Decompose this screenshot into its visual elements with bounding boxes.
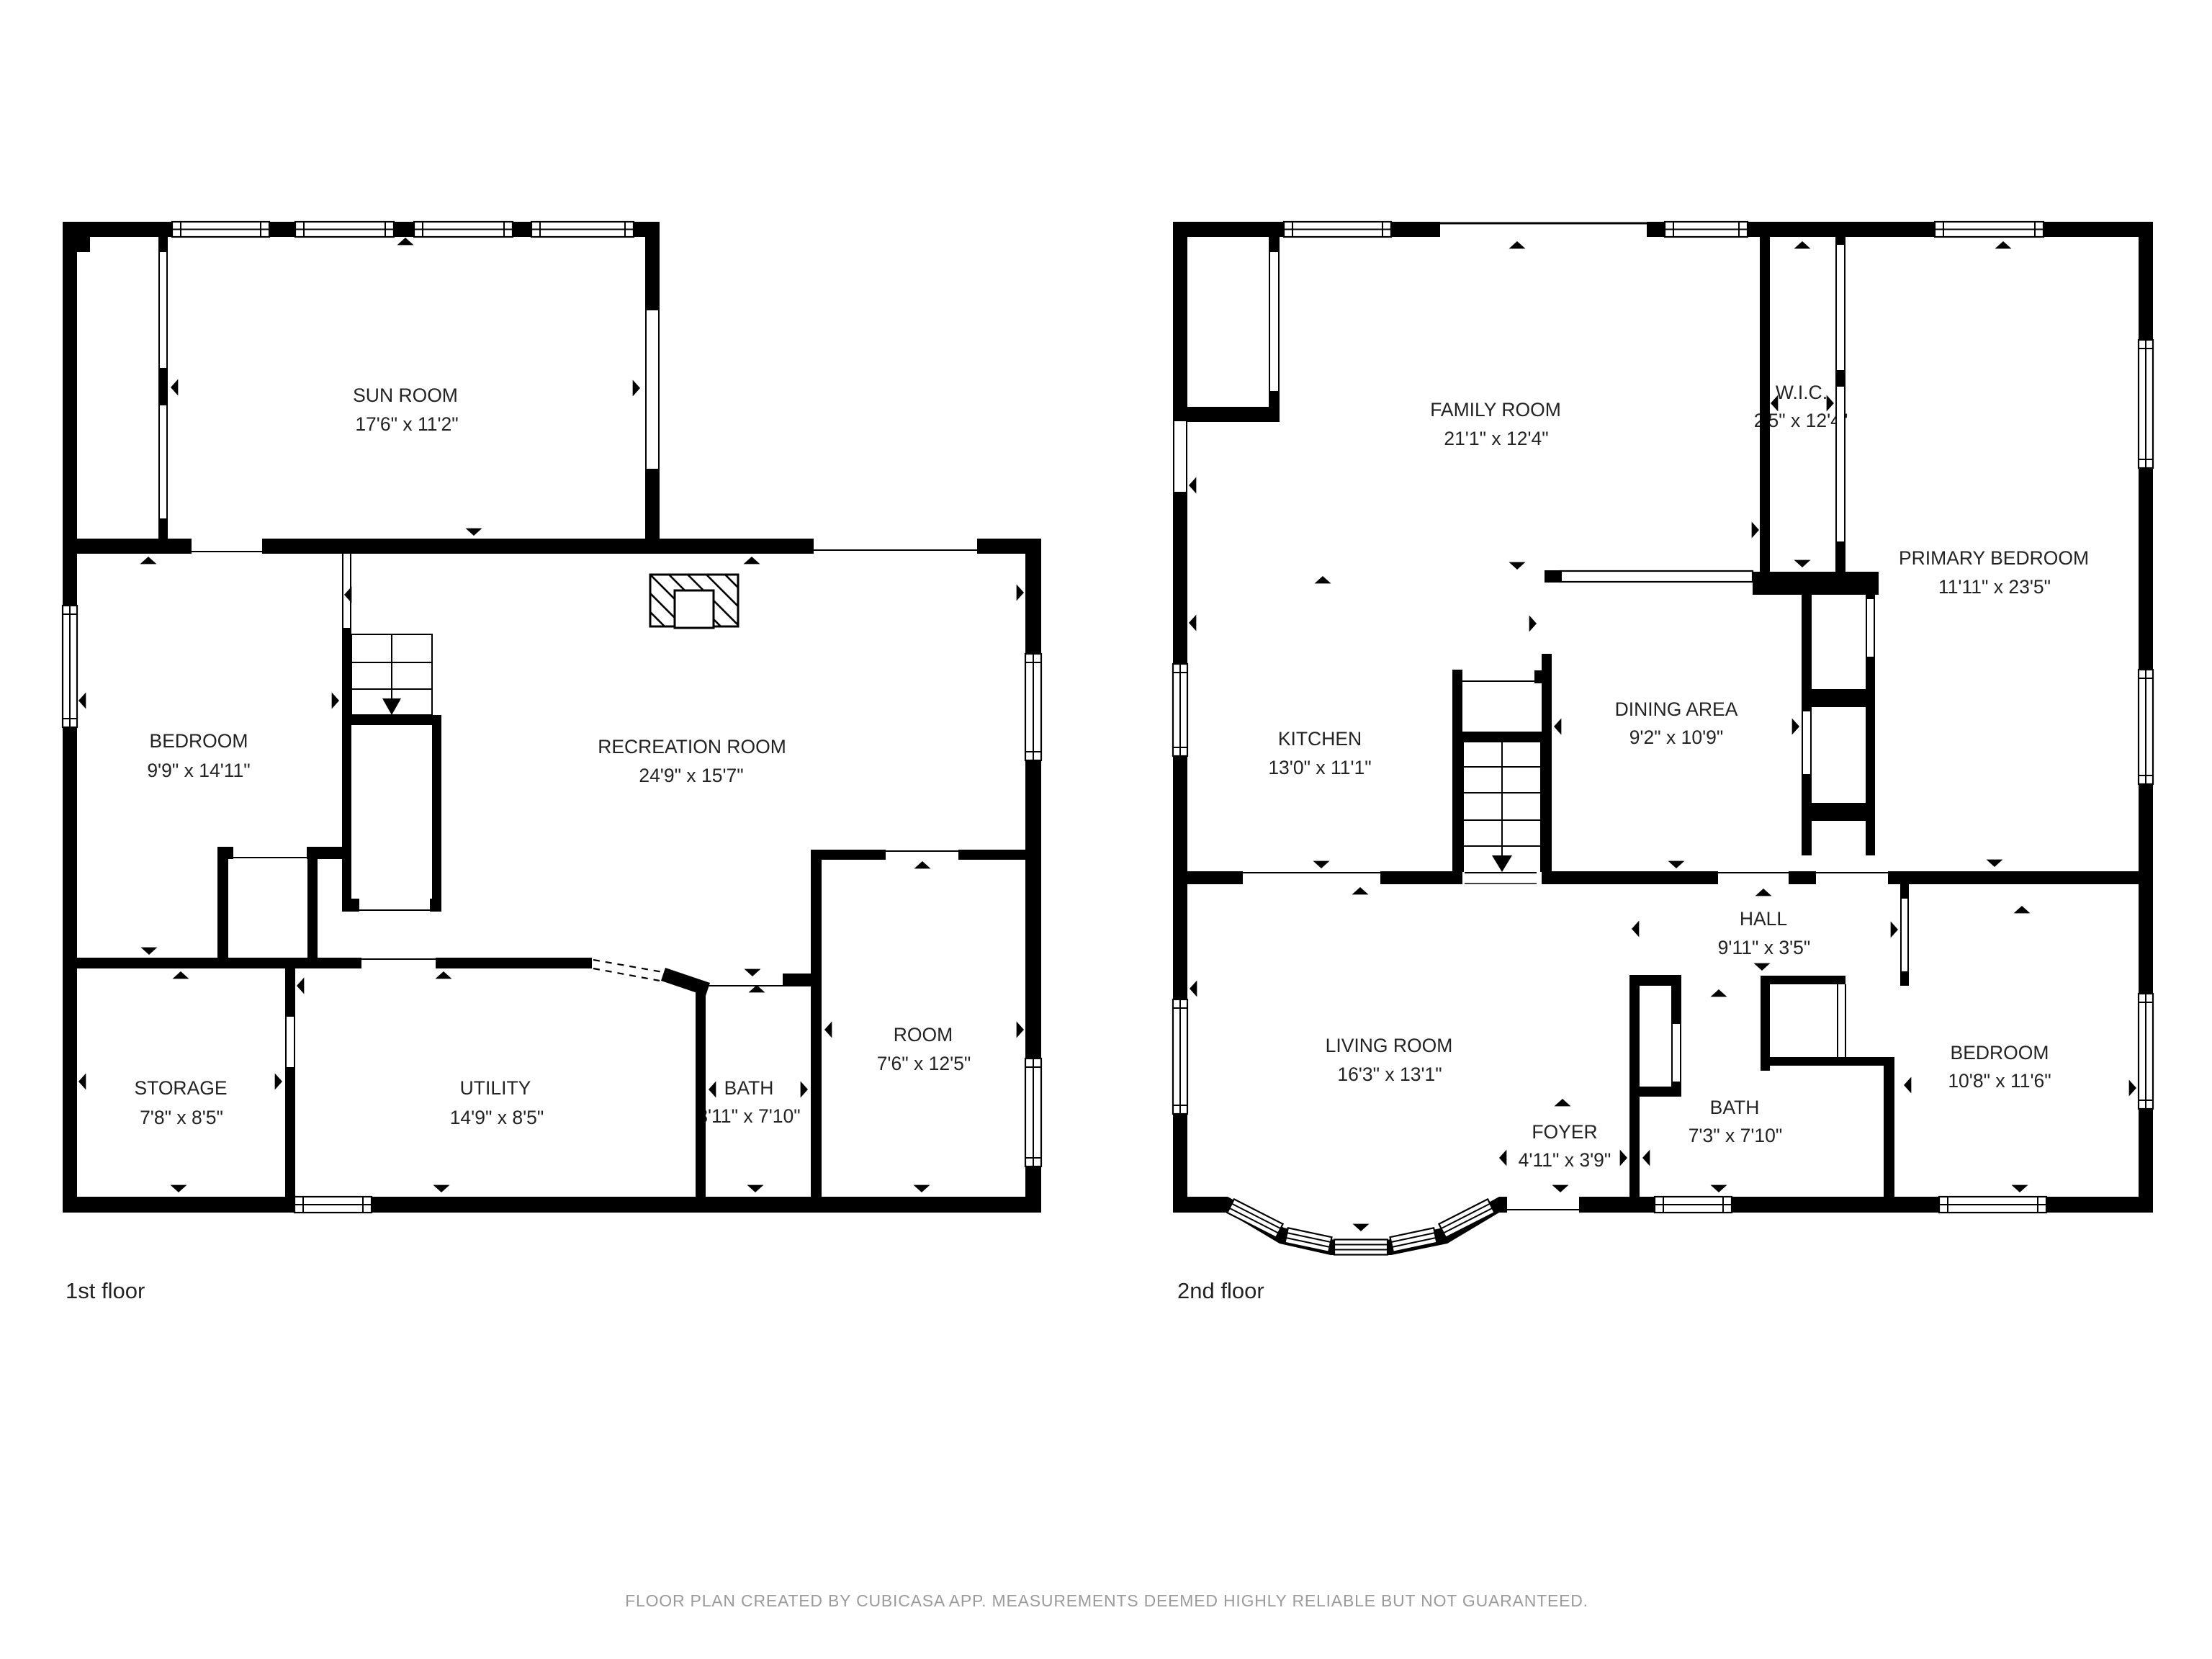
svg-text:FLOOR PLAN CREATED BY CUBICASA: FLOOR PLAN CREATED BY CUBICASA APP. MEAS… (625, 1591, 1588, 1610)
svg-text:KITCHEN: KITCHEN (1278, 728, 1362, 750)
svg-text:24'9" x 15'7": 24'9" x 15'7" (639, 765, 743, 786)
svg-text:7'6" x 12'5": 7'6" x 12'5" (877, 1053, 971, 1074)
svg-text:13'0" x 11'1": 13'0" x 11'1" (1268, 757, 1371, 778)
svg-text:21'1" x 12'4": 21'1" x 12'4" (1444, 428, 1548, 449)
svg-text:FAMILY ROOM: FAMILY ROOM (1430, 399, 1561, 421)
svg-text:9'2" x 10'9": 9'2" x 10'9" (1629, 727, 1724, 748)
svg-text:1st floor: 1st floor (66, 1278, 145, 1303)
svg-text:4'11" x 3'9": 4'11" x 3'9" (1519, 1149, 1611, 1171)
svg-text:BEDROOM: BEDROOM (1951, 1042, 2049, 1064)
svg-text:14'9" x 8'5": 14'9" x 8'5" (450, 1107, 544, 1128)
svg-text:STORAGE: STORAGE (134, 1077, 227, 1099)
svg-text:FOYER: FOYER (1532, 1121, 1597, 1143)
svg-text:BATH: BATH (1710, 1097, 1760, 1118)
svg-text:UTILITY: UTILITY (460, 1077, 531, 1099)
svg-text:7'8" x 8'5": 7'8" x 8'5" (140, 1107, 223, 1128)
svg-text:11'11" x 23'5": 11'11" x 23'5" (1938, 576, 2051, 598)
svg-text:ROOM: ROOM (894, 1024, 953, 1046)
svg-text:16'3" x 13'1": 16'3" x 13'1" (1337, 1064, 1442, 1085)
svg-text:9'11" x 3'5": 9'11" x 3'5" (1718, 937, 1811, 958)
svg-text:2nd floor: 2nd floor (1177, 1278, 1264, 1303)
svg-text:PRIMARY BEDROOM: PRIMARY BEDROOM (1899, 547, 2089, 569)
svg-text:W.I.C.: W.I.C. (1776, 382, 1827, 403)
svg-text:17'6" x 11'2": 17'6" x 11'2" (355, 413, 458, 435)
svg-text:BATH: BATH (724, 1077, 774, 1099)
svg-text:HALL: HALL (1740, 908, 1787, 930)
svg-text:3'11" x 7'10": 3'11" x 7'10" (697, 1105, 800, 1127)
svg-text:LIVING ROOM: LIVING ROOM (1326, 1035, 1453, 1056)
svg-text:9'9" x 14'11": 9'9" x 14'11" (147, 760, 250, 781)
svg-text:DINING AREA: DINING AREA (1615, 698, 1738, 720)
svg-text:10'8" x 11'6": 10'8" x 11'6" (1948, 1070, 2051, 1092)
svg-text:7'3" x 7'10": 7'3" x 7'10" (1689, 1125, 1783, 1146)
svg-text:RECREATION ROOM: RECREATION ROOM (598, 736, 786, 757)
svg-text:SUN ROOM: SUN ROOM (353, 385, 458, 406)
svg-text:BEDROOM: BEDROOM (150, 730, 248, 752)
